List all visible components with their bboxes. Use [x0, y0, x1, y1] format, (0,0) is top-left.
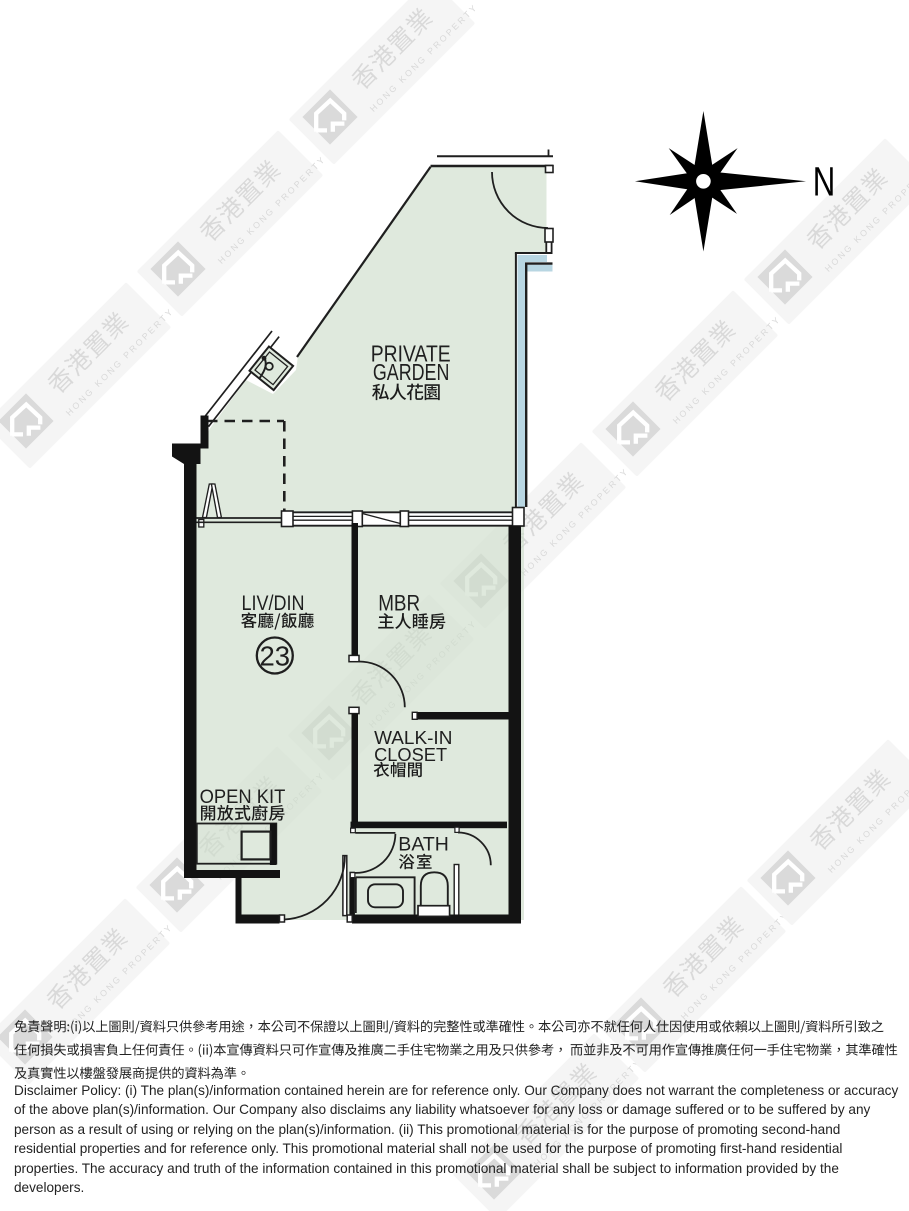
svg-text:N: N — [813, 158, 836, 204]
svg-text:OPEN KIT: OPEN KIT — [200, 786, 286, 808]
svg-text:LIV/DIN: LIV/DIN — [242, 591, 305, 615]
svg-text:23: 23 — [260, 640, 291, 671]
svg-text:CLOSET: CLOSET — [374, 744, 447, 765]
svg-text:MBR: MBR — [378, 591, 420, 616]
svg-text:GARDEN: GARDEN — [373, 359, 450, 385]
svg-text:BATH: BATH — [398, 835, 449, 856]
